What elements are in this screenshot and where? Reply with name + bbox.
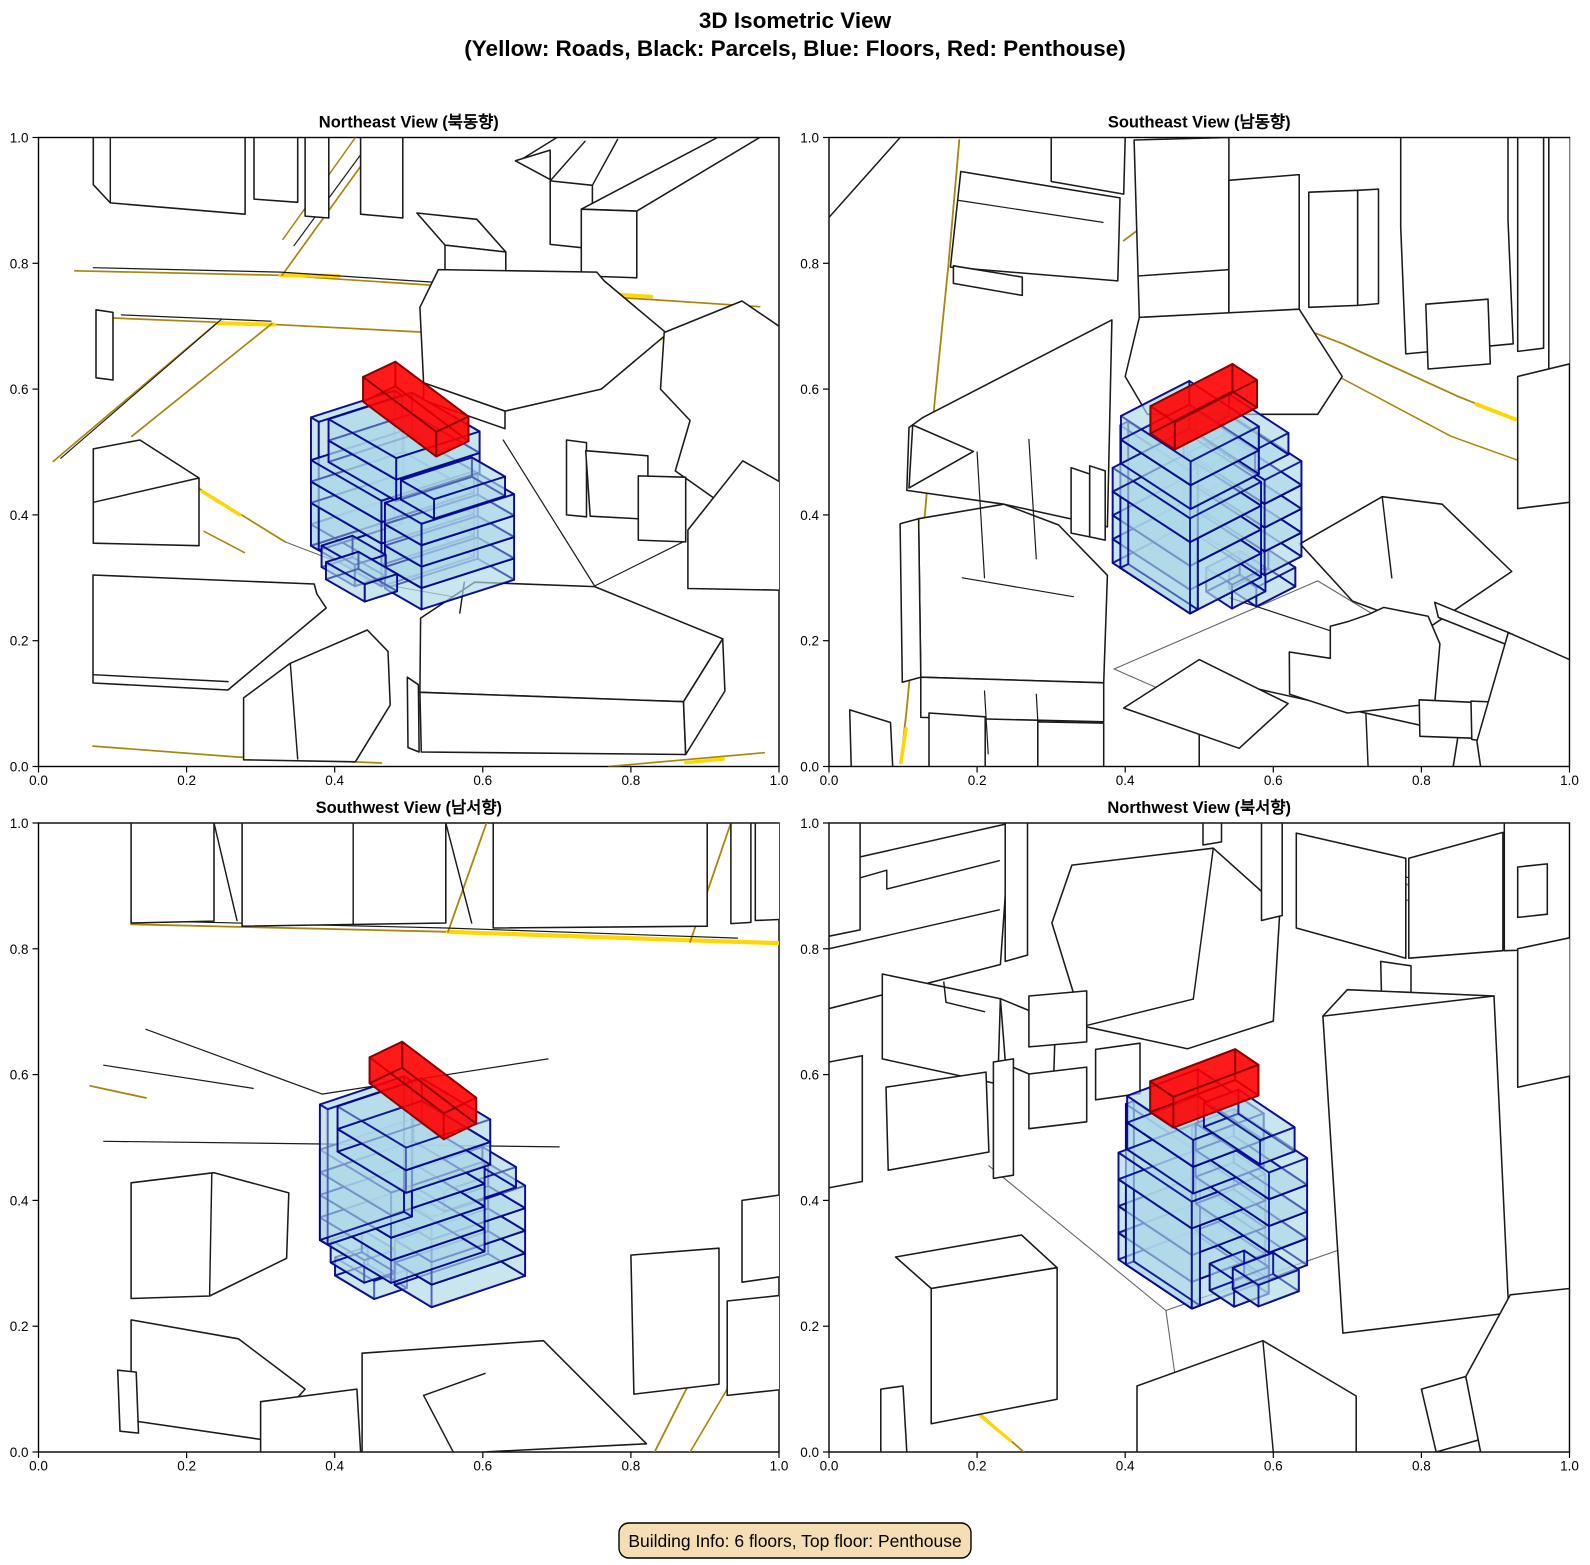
svg-text:0.2: 0.2 <box>10 634 29 649</box>
svg-text:0.6: 0.6 <box>1264 773 1283 788</box>
svg-text:Southeast View (남동향): Southeast View (남동향) <box>1108 112 1291 132</box>
svg-text:0.4: 0.4 <box>800 1193 819 1208</box>
svg-text:1.0: 1.0 <box>10 816 29 831</box>
svg-text:(Yellow: Roads, Black: Parcels: (Yellow: Roads, Black: Parcels, Blue: Fl… <box>464 36 1125 61</box>
svg-text:0.0: 0.0 <box>800 760 819 775</box>
svg-text:0.2: 0.2 <box>177 773 196 788</box>
svg-text:1.0: 1.0 <box>1560 1459 1579 1474</box>
svg-text:0.6: 0.6 <box>10 382 29 397</box>
svg-text:0.0: 0.0 <box>820 1459 839 1474</box>
svg-text:0.4: 0.4 <box>325 1459 344 1474</box>
svg-text:Southwest View (남서향): Southwest View (남서향) <box>316 797 502 817</box>
svg-text:0.6: 0.6 <box>10 1068 29 1083</box>
svg-text:0.0: 0.0 <box>800 1445 819 1460</box>
svg-text:0.8: 0.8 <box>800 256 819 271</box>
svg-text:0.2: 0.2 <box>10 1319 29 1334</box>
svg-text:0.6: 0.6 <box>1264 1459 1283 1474</box>
svg-text:1.0: 1.0 <box>800 816 819 831</box>
svg-text:0.2: 0.2 <box>968 773 987 788</box>
svg-text:0.0: 0.0 <box>29 1459 48 1474</box>
svg-text:0.0: 0.0 <box>10 760 29 775</box>
svg-text:0.4: 0.4 <box>10 1193 29 1208</box>
svg-text:0.2: 0.2 <box>800 634 819 649</box>
svg-text:0.4: 0.4 <box>325 773 344 788</box>
svg-text:0.6: 0.6 <box>473 773 492 788</box>
svg-text:1.0: 1.0 <box>1560 773 1579 788</box>
svg-text:0.6: 0.6 <box>800 1068 819 1083</box>
svg-text:Building Info: 6 floors, Top f: Building Info: 6 floors, Top floor: Pent… <box>628 1531 961 1551</box>
svg-text:0.0: 0.0 <box>820 773 839 788</box>
svg-text:0.4: 0.4 <box>1116 773 1135 788</box>
svg-text:0.2: 0.2 <box>800 1319 819 1334</box>
svg-text:0.2: 0.2 <box>968 1459 987 1474</box>
svg-text:0.8: 0.8 <box>622 1459 641 1474</box>
svg-text:0.8: 0.8 <box>1412 773 1431 788</box>
svg-text:0.4: 0.4 <box>800 508 819 523</box>
svg-text:0.0: 0.0 <box>29 773 48 788</box>
svg-text:0.8: 0.8 <box>1412 1459 1431 1474</box>
svg-text:1.0: 1.0 <box>10 131 29 146</box>
svg-text:0.6: 0.6 <box>473 1459 492 1474</box>
svg-text:3D Isometric View: 3D Isometric View <box>699 8 892 33</box>
svg-text:1.0: 1.0 <box>770 1459 789 1474</box>
svg-text:0.8: 0.8 <box>622 773 641 788</box>
svg-text:0.0: 0.0 <box>10 1445 29 1460</box>
svg-text:0.8: 0.8 <box>800 942 819 957</box>
svg-text:1.0: 1.0 <box>770 773 789 788</box>
svg-text:Northeast View (북동향): Northeast View (북동향) <box>319 112 499 132</box>
svg-text:1.0: 1.0 <box>800 131 819 146</box>
svg-text:0.4: 0.4 <box>10 508 29 523</box>
svg-text:0.8: 0.8 <box>10 256 29 271</box>
svg-text:0.4: 0.4 <box>1116 1459 1135 1474</box>
svg-text:0.6: 0.6 <box>800 382 819 397</box>
svg-text:Northwest View (북서향): Northwest View (북서향) <box>1107 797 1291 817</box>
svg-text:0.8: 0.8 <box>10 942 29 957</box>
svg-text:0.2: 0.2 <box>177 1459 196 1474</box>
